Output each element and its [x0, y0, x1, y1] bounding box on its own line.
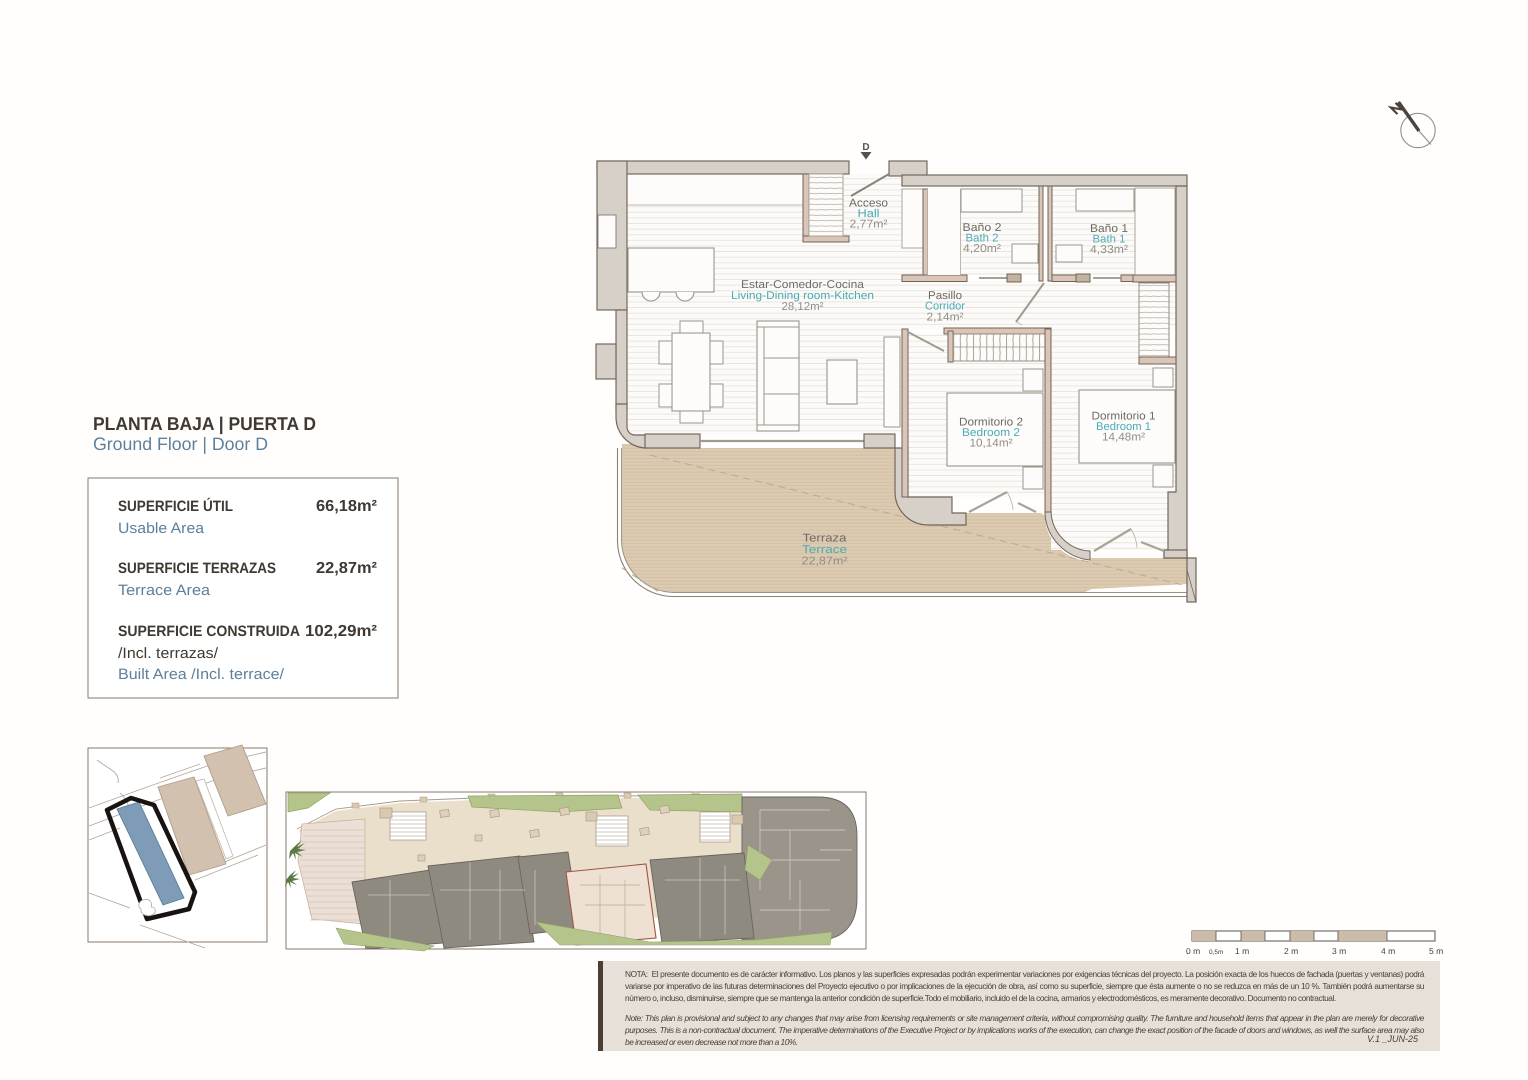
svg-text:Built Area /Incl. terrace/: Built Area /Incl. terrace/	[118, 666, 285, 683]
svg-text:66,18m²: 66,18m²	[316, 498, 377, 515]
svg-text:Terrace Area: Terrace Area	[118, 582, 211, 599]
svg-text:2 m: 2 m	[1284, 946, 1298, 956]
svg-text:28,12m²: 28,12m²	[782, 301, 824, 313]
svg-text:22,87m²: 22,87m²	[802, 556, 848, 568]
svg-text:PLANTA BAJA | PUERTA D: PLANTA BAJA | PUERTA D	[93, 413, 316, 435]
svg-text:4,20m²: 4,20m²	[963, 243, 1001, 255]
svg-text:0,5m: 0,5m	[1209, 949, 1223, 956]
svg-text:SUPERFICIE TERRAZAS: SUPERFICIE TERRAZAS	[118, 560, 276, 577]
svg-text:0 m: 0 m	[1186, 946, 1200, 956]
svg-text:/Incl. terrazas/: /Incl. terrazas/	[118, 645, 219, 662]
svg-text:Terrace: Terrace	[802, 544, 847, 556]
svg-text:5 m: 5 m	[1429, 946, 1443, 956]
svg-text:2,77m²: 2,77m²	[850, 219, 888, 231]
svg-text:2,14m²: 2,14m²	[927, 312, 964, 324]
svg-text:10,14m²: 10,14m²	[970, 438, 1013, 450]
svg-text:SUPERFICIE ÚTIL: SUPERFICIE ÚTIL	[118, 497, 233, 515]
svg-text:102,29m²: 102,29m²	[305, 623, 377, 640]
svg-text:Terraza: Terraza	[803, 533, 848, 545]
svg-text:Ground Floor | Door D: Ground Floor | Door D	[93, 434, 268, 454]
svg-text:14,48m²: 14,48m²	[1102, 432, 1145, 444]
svg-text:4,33m²: 4,33m²	[1090, 244, 1128, 256]
svg-text:22,87m²: 22,87m²	[316, 560, 377, 577]
svg-text:Usable Area: Usable Area	[118, 520, 205, 537]
svg-text:4 m: 4 m	[1381, 946, 1395, 956]
svg-text:3 m: 3 m	[1332, 946, 1346, 956]
svg-text:D: D	[862, 142, 869, 153]
svg-text:SUPERFICIE CONSTRUIDA: SUPERFICIE CONSTRUIDA	[118, 623, 300, 640]
svg-text:1 m: 1 m	[1235, 946, 1249, 956]
